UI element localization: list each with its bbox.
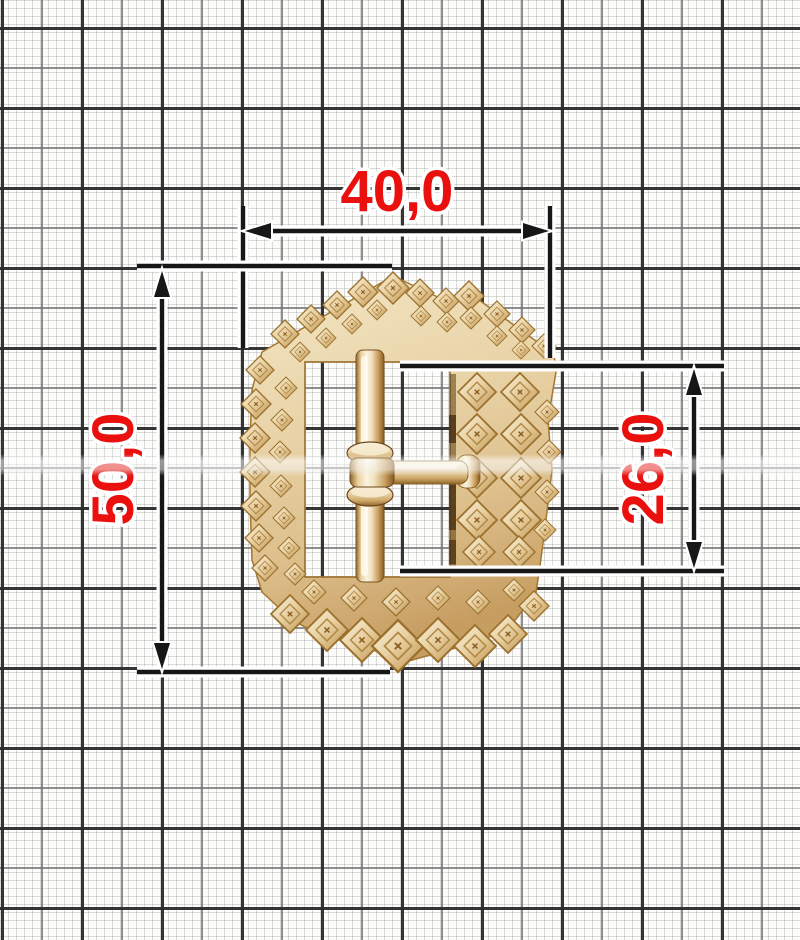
- prong-hinge: [350, 458, 394, 487]
- arrowhead-top: [154, 271, 170, 297]
- dimension-inner-height-label: 26,0: [611, 413, 676, 526]
- belt-buckle: [240, 272, 561, 672]
- dimension-height-label: 50,0: [81, 413, 146, 526]
- arrowhead-top: [686, 369, 702, 395]
- graph-paper-background: 40,0 50,0 26,0: [0, 0, 800, 940]
- left-window-edge: [305, 362, 357, 577]
- buckle-technical-drawing: 40,0 50,0 26,0: [0, 0, 800, 940]
- arrowhead-left: [245, 223, 271, 239]
- dimension-width-label: 40,0: [341, 159, 454, 224]
- arrowhead-bottom: [686, 542, 702, 568]
- arrowhead-bottom: [154, 643, 170, 669]
